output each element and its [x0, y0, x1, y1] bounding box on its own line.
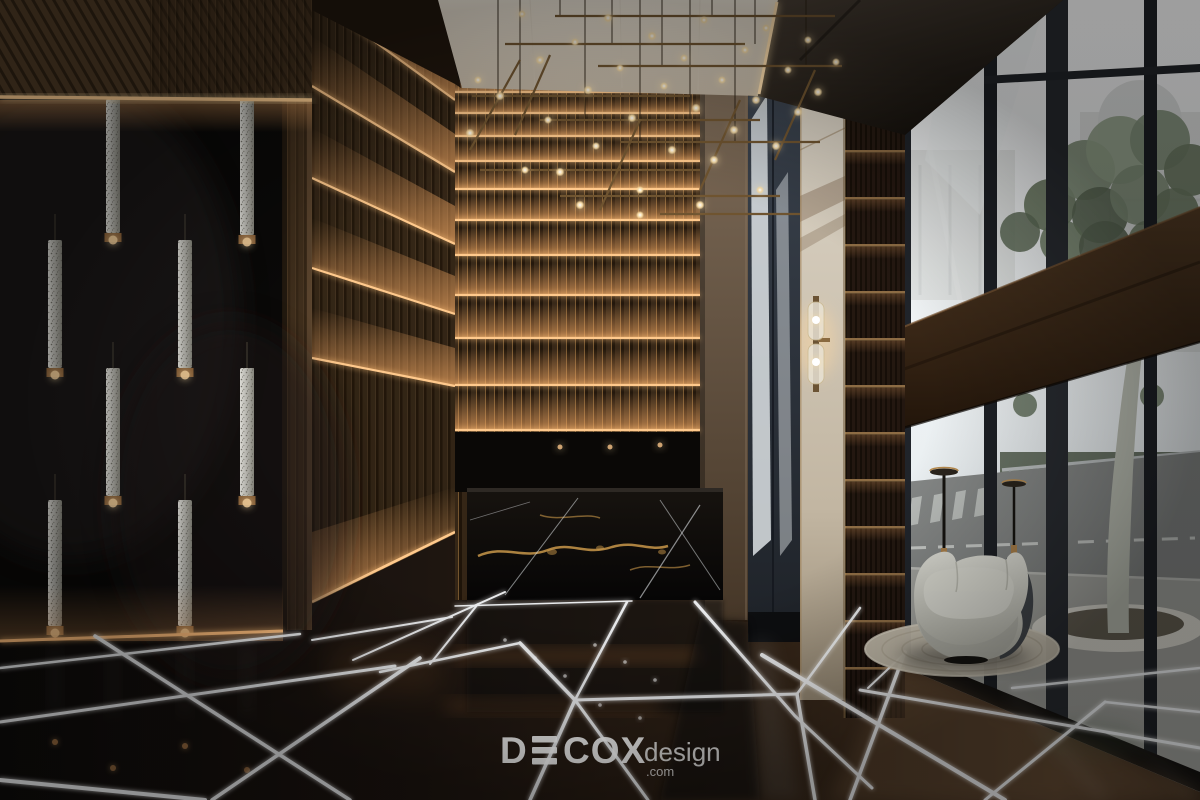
lobby-render: D COX design .com: [0, 0, 1200, 800]
lobby-scene: D COX design .com: [0, 0, 1200, 800]
vignette: [0, 0, 1200, 800]
